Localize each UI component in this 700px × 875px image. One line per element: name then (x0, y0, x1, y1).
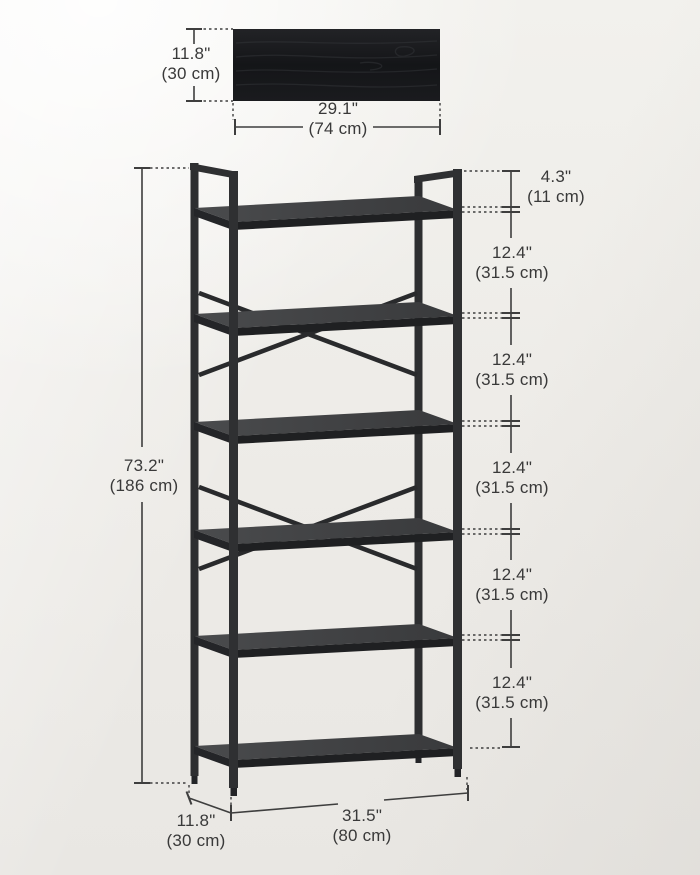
dim-value-cm: (74 cm) (308, 119, 367, 139)
dim-value-inches: 73.2" (110, 456, 179, 476)
dim-value-inches: 31.5" (332, 806, 391, 826)
dim-value-inches: 11.8" (161, 44, 220, 64)
dim-value-inches: 12.4" (475, 350, 549, 370)
dim-label-shelf-gap-1: 12.4" (31.5 cm) (475, 243, 549, 283)
dim-value-inches: 12.4" (475, 565, 549, 585)
product-dimension-diagram: 11.8" (30 cm) 29.1" (74 cm) 4.3" (11 cm)… (0, 0, 700, 875)
dim-value-cm: (11 cm) (527, 187, 585, 207)
foot-pad (231, 788, 238, 796)
dim-value-cm: (30 cm) (166, 831, 225, 851)
dim-label-total-height: 73.2" (186 cm) (110, 456, 179, 496)
dim-label-top-gap: 4.3" (11 cm) (527, 167, 585, 207)
dim-label-shelf-gap-3: 12.4" (31.5 cm) (475, 458, 549, 498)
dim-value-inches: 4.3" (527, 167, 585, 187)
dim-label-base-width: 31.5" (80 cm) (332, 806, 391, 846)
back-posts (191, 163, 423, 784)
dim-label-base-depth: 11.8" (30 cm) (166, 811, 225, 851)
dim-value-inches: 12.4" (475, 458, 549, 478)
foot-pad (192, 776, 198, 784)
dim-value-cm: (80 cm) (332, 826, 391, 846)
dim-value-inches: 29.1" (308, 99, 367, 119)
dim-value-inches: 12.4" (475, 673, 549, 693)
dim-value-cm: (31.5 cm) (475, 263, 549, 283)
dim-label-shelf-gap-5: 12.4" (31.5 cm) (475, 673, 549, 713)
dim-value-cm: (31.5 cm) (475, 370, 549, 390)
shelf-panel-top-view (233, 29, 440, 101)
dim-label-panel-height: 11.8" (30 cm) (161, 44, 220, 84)
dim-value-inches: 12.4" (475, 243, 549, 263)
bookshelf-illustration (190, 163, 462, 796)
dim-label-shelf-gap-2: 12.4" (31.5 cm) (475, 350, 549, 390)
dim-value-cm: (31.5 cm) (475, 585, 549, 605)
dim-value-cm: (31.5 cm) (475, 478, 549, 498)
front-posts (229, 169, 462, 796)
dim-label-shelf-gap-4: 12.4" (31.5 cm) (475, 565, 549, 605)
dim-label-panel-width: 29.1" (74 cm) (308, 99, 367, 139)
dim-value-inches: 11.8" (166, 811, 225, 831)
dim-value-cm: (186 cm) (110, 476, 179, 496)
dim-value-cm: (30 cm) (161, 64, 220, 84)
dim-value-cm: (31.5 cm) (475, 693, 549, 713)
foot-pad (455, 769, 462, 777)
